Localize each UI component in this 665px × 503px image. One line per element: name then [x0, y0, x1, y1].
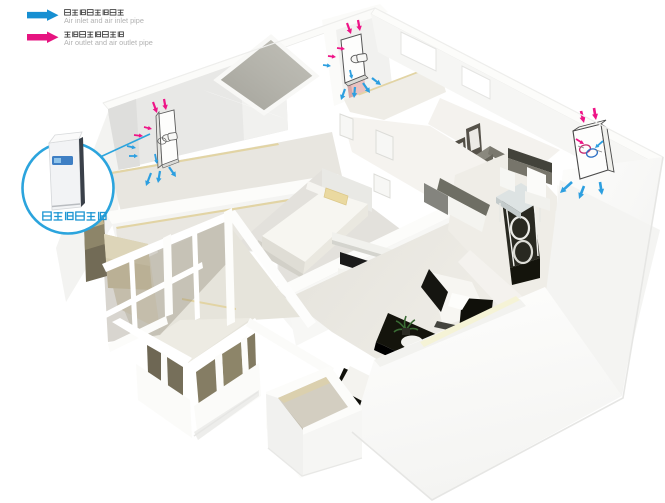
svg-text:Air inlet and air inlet pipe: Air inlet and air inlet pipe	[64, 16, 144, 25]
svg-text:Air outlet and air outlet pipe: Air outlet and air outlet pipe	[64, 38, 153, 47]
